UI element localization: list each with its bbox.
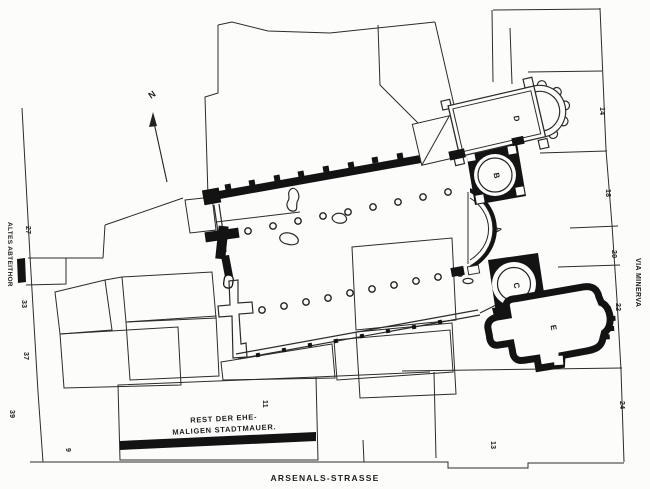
house-number: 13 <box>489 441 496 449</box>
house-number: 27 <box>24 226 31 234</box>
street-label-bottom: ARSENALS-STRASSE <box>271 473 380 483</box>
house-number: 22 <box>614 303 621 311</box>
street-label-left: ALTES ABTEITHOR <box>6 222 13 287</box>
house-number: 11 <box>261 400 268 408</box>
scanned-plan-page: N <box>0 0 650 489</box>
house-number: 24 <box>618 401 625 409</box>
house-number: 9 <box>64 448 71 452</box>
paper-background <box>0 0 650 489</box>
site-plan-svg: N <box>0 0 650 489</box>
house-number: 14 <box>598 107 605 115</box>
house-number: 20 <box>610 250 617 258</box>
house-number: 33 <box>20 300 27 308</box>
west-pier <box>202 188 221 206</box>
house-number: 18 <box>604 189 611 197</box>
abbey-gate-bar <box>17 258 26 283</box>
house-number: 37 <box>22 352 29 360</box>
street-label-right: VIA MINERVA <box>634 258 641 307</box>
house-number: 39 <box>8 410 15 418</box>
